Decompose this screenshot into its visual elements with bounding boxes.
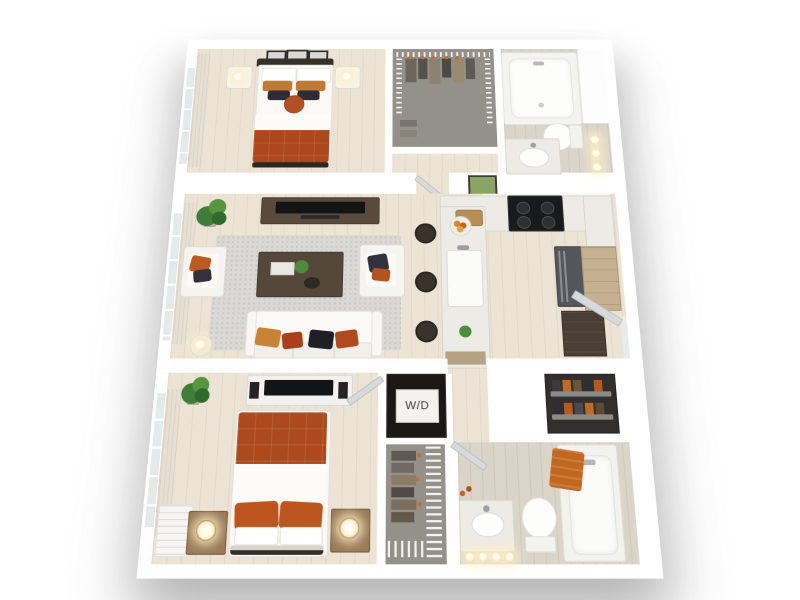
- bathroom-1-floor: [501, 49, 614, 173]
- bar-stool-3: [415, 321, 438, 343]
- wire-shelf-left: [396, 58, 402, 115]
- closet-2-floor: [385, 444, 446, 564]
- tub-faucet: [533, 62, 544, 66]
- potted-plant-bedroom2: [180, 377, 216, 408]
- tv-living: [275, 202, 365, 214]
- bathtub-2: [557, 444, 626, 562]
- closet-item: [552, 380, 561, 391]
- closet-item: [583, 380, 592, 391]
- hanger-hook: [408, 56, 412, 59]
- pillow-orange: [371, 268, 390, 282]
- linen-closet: [544, 374, 620, 434]
- headboard-dark: [230, 550, 324, 555]
- hanging-garment: [466, 58, 476, 79]
- bedroom-1-floor: [187, 49, 386, 173]
- hanging-garment: [391, 451, 416, 461]
- armchair-left: [179, 246, 227, 297]
- hanger-hook: [421, 56, 425, 59]
- wire-shelf-right: [426, 447, 443, 562]
- bar-stool-2: [415, 271, 437, 292]
- perfume-bottle: [460, 491, 466, 497]
- tub-drain: [538, 103, 544, 108]
- closet-item: [553, 403, 562, 415]
- pillow-tan: [254, 327, 282, 348]
- washer-dryer-label: W/D: [396, 389, 439, 423]
- bed-bedroom2: [228, 410, 330, 555]
- closet-item: [573, 380, 582, 391]
- plant-leaves: [194, 388, 210, 403]
- hanger-hook: [445, 56, 449, 59]
- range-cooktop: [507, 196, 565, 232]
- fruit: [457, 226, 464, 232]
- vanity-light: [464, 551, 474, 562]
- hanger-hook: [415, 477, 419, 481]
- soundbar: [301, 215, 340, 219]
- pillow-white-2: [279, 527, 323, 546]
- vanity-2: [459, 500, 516, 553]
- toilet-2-bowl: [521, 497, 558, 538]
- plant-leaves: [211, 212, 227, 226]
- sheet-fold: [254, 115, 330, 130]
- hanging-garment: [391, 512, 414, 522]
- closet-item: [595, 403, 604, 415]
- hanging-garment: [391, 463, 414, 473]
- vanity-light: [491, 551, 501, 562]
- speaker-left: [249, 382, 259, 399]
- sheet-fold: [233, 464, 326, 502]
- bathtub-1: [501, 52, 583, 125]
- fruit-bowl: [450, 216, 472, 236]
- fridge-handle: [563, 251, 568, 302]
- hanging-garment: [391, 475, 416, 485]
- wall-band-right: [487, 359, 632, 374]
- coffee-table: [256, 252, 344, 297]
- hanger-hook: [432, 56, 436, 59]
- vanity-1: [505, 138, 562, 174]
- coffee-table-books: [270, 262, 295, 275]
- towel-orange: [549, 447, 585, 491]
- shelf-item: [400, 120, 417, 127]
- hanging-garment: [418, 58, 427, 79]
- wire-shelf-right: [485, 58, 493, 126]
- pillow-dark: [193, 268, 212, 283]
- island-faucet: [457, 245, 469, 250]
- vanity-2-sink: [471, 512, 505, 537]
- wire-shelf-bottom: [388, 541, 427, 557]
- hanger-hook: [417, 502, 421, 507]
- bathroom-2-floor: [458, 442, 640, 564]
- vanity-light: [589, 135, 600, 144]
- bathtub-basin: [508, 58, 574, 118]
- island-wood-base: [445, 351, 486, 364]
- hanging-garment: [453, 58, 465, 82]
- hanging-garment: [442, 58, 452, 77]
- vanity-light: [590, 149, 601, 158]
- perfume-bottle: [466, 486, 472, 492]
- bedroom-2-floor: [151, 373, 378, 565]
- vanity-light: [504, 551, 514, 562]
- toilet-1-tank: [569, 125, 584, 149]
- hanging-garment: [429, 58, 440, 83]
- bar-stool-1: [415, 223, 437, 243]
- tv-console: [260, 197, 379, 224]
- closet-item: [585, 403, 594, 415]
- burner: [540, 202, 554, 215]
- kitchen-wall-art: [468, 175, 498, 195]
- washer-dryer-text: W/D: [405, 400, 429, 413]
- speaker-right: [338, 382, 348, 399]
- wire-shelf: [551, 391, 612, 396]
- apartment-floorplan: W/D: [137, 40, 664, 579]
- pillow-white-1: [234, 527, 279, 546]
- dark-console: [561, 311, 607, 357]
- pillow-black: [308, 329, 335, 349]
- closet-item: [594, 380, 603, 391]
- potted-plant-living: [195, 199, 230, 230]
- vanity-1-faucet: [530, 143, 536, 148]
- shelf-item: [400, 130, 417, 137]
- sofa: [244, 305, 381, 359]
- hanger-hook: [455, 56, 459, 59]
- bathroom-2-door: [450, 441, 488, 472]
- burner: [516, 202, 530, 215]
- island-plant: [459, 326, 472, 338]
- coffee-table-tray: [304, 277, 320, 288]
- dresser: [245, 375, 353, 406]
- hanging-garment: [391, 500, 416, 510]
- closet-1-floor: [392, 49, 497, 147]
- closet-item: [574, 403, 583, 415]
- duvet-rust: [236, 412, 328, 464]
- vanity-2-faucet: [483, 505, 490, 512]
- wire-shelf: [552, 414, 614, 419]
- kitchen-counter-right: [583, 196, 617, 252]
- burner: [517, 216, 531, 229]
- vanity-1-sink: [518, 148, 550, 168]
- pillow-orange: [335, 329, 359, 349]
- armchair-right: [359, 244, 405, 297]
- pillow-rust: [282, 331, 304, 349]
- island-sink: [446, 250, 483, 307]
- wall-band-left: [169, 359, 448, 374]
- duvet-rust: [252, 130, 329, 162]
- toilet-2-tank: [525, 536, 557, 552]
- bed-bedroom1: [250, 58, 333, 167]
- vanity-light: [478, 551, 488, 562]
- hanging-garment: [391, 487, 414, 497]
- hanger-hook: [417, 453, 421, 457]
- living-kitchen-floor: [169, 194, 632, 374]
- burner: [541, 216, 555, 229]
- coffee-table-plant: [294, 260, 308, 273]
- hanging-garment: [405, 58, 416, 82]
- hallway-1-floor: [392, 154, 498, 173]
- hallway-2-floor: [452, 374, 490, 446]
- bed-bench: [252, 162, 329, 167]
- tv-bedroom2: [264, 380, 333, 396]
- vanity-light: [591, 162, 602, 172]
- floorplan-canvas: W/D: [0, 0, 800, 600]
- laundry-closet: W/D: [386, 374, 447, 438]
- closet-item: [562, 380, 571, 391]
- closet-item: [564, 403, 573, 415]
